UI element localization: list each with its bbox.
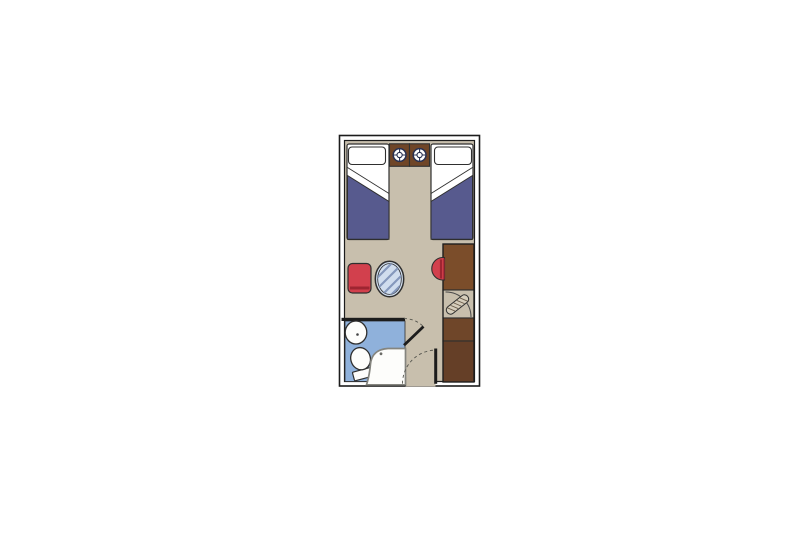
armchair (348, 264, 371, 294)
washbasin-drain (356, 333, 359, 336)
washbasin (345, 321, 367, 344)
desk-wardrobe-unit (443, 244, 474, 382)
washbasin-bowl (345, 321, 367, 344)
cabin-floor-plan (0, 0, 800, 533)
bathroom-wall (342, 318, 406, 321)
twin-bed-left (347, 144, 389, 240)
wardrobe-shelf-mid (443, 318, 474, 341)
bed-left-pillow (349, 147, 386, 165)
twin-bed-right (431, 144, 473, 240)
reading-light-left-icon (393, 149, 406, 162)
wardrobe-shelf-bottom (443, 341, 474, 382)
bed-right-pillow (435, 147, 472, 165)
shower-handle (380, 352, 383, 355)
entrance-threshold (406, 377, 436, 387)
desk (443, 244, 474, 290)
dial-center (397, 152, 402, 157)
reading-light-right-icon (413, 149, 426, 162)
page-canvas (0, 0, 800, 533)
dial-center (417, 152, 422, 157)
